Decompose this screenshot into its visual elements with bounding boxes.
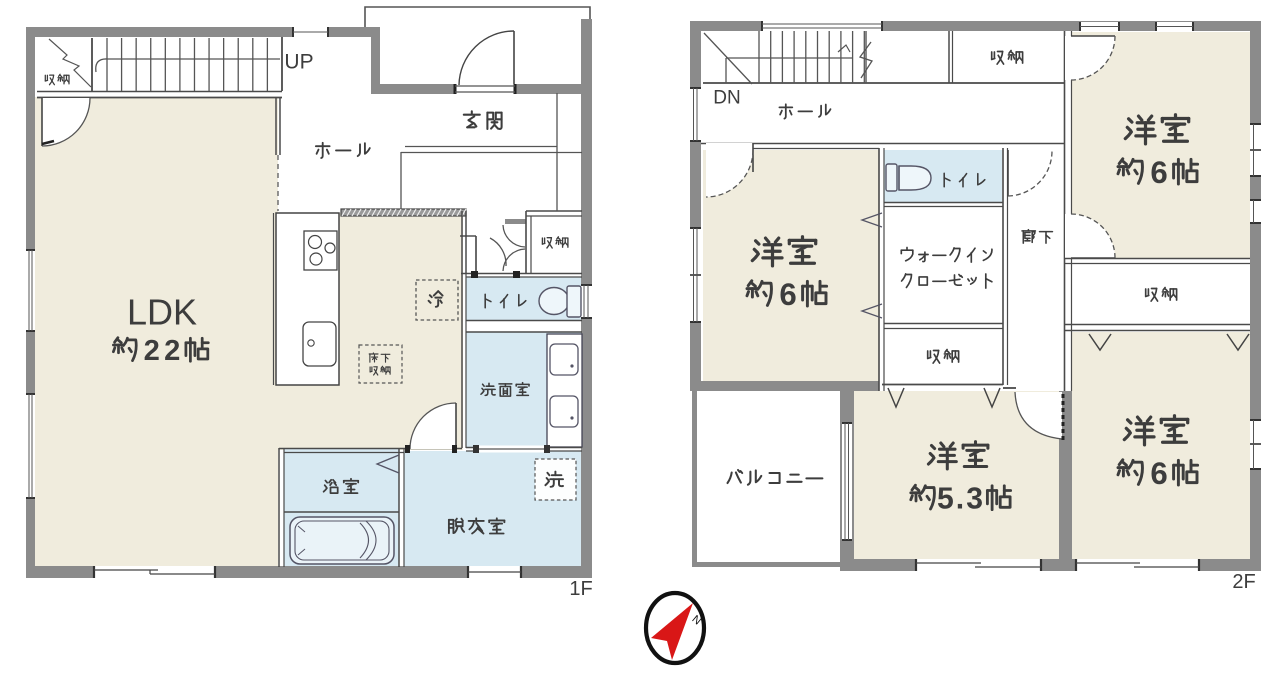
svg-text:2: 2 [164,335,180,367]
svg-text:6: 6 [1150,155,1167,190]
svg-text:2: 2 [144,335,160,367]
svg-text:2F: 2F [1232,571,1255,593]
svg-text:DN: DN [713,88,740,109]
svg-text:3: 3 [966,482,983,515]
svg-text:5: 5 [937,482,954,515]
svg-text:.: . [956,482,964,515]
svg-text:1F: 1F [569,578,592,600]
svg-text:6: 6 [1150,456,1167,491]
svg-text:LDK: LDK [127,292,197,333]
svg-text:6: 6 [779,277,796,312]
svg-text:UP: UP [284,50,313,73]
svg-text:N: N [690,613,704,627]
